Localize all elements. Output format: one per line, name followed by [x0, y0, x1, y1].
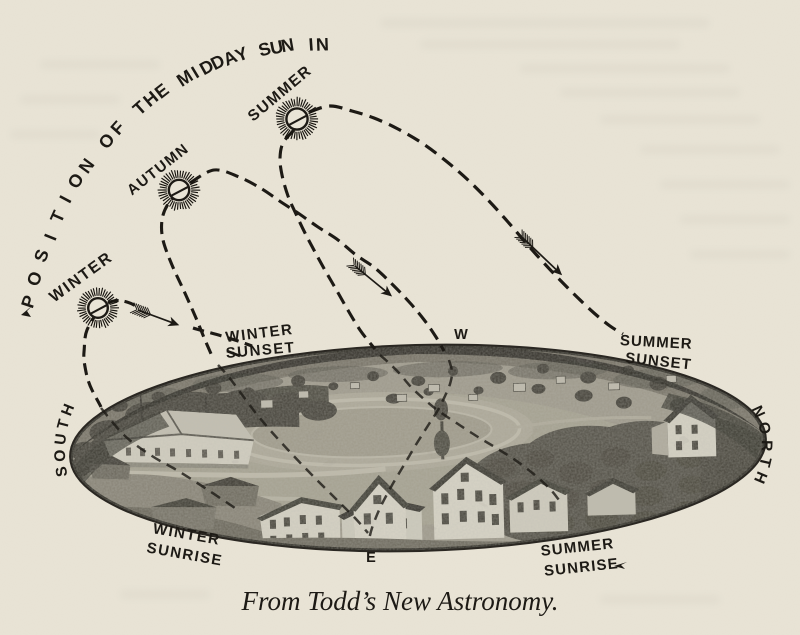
svg-text:N: N	[316, 34, 330, 54]
svg-text:E: E	[366, 550, 376, 566]
svg-text:From Todd’s New Astronomy.: From Todd’s New Astronomy.	[240, 586, 558, 616]
svg-text:W: W	[454, 327, 468, 343]
